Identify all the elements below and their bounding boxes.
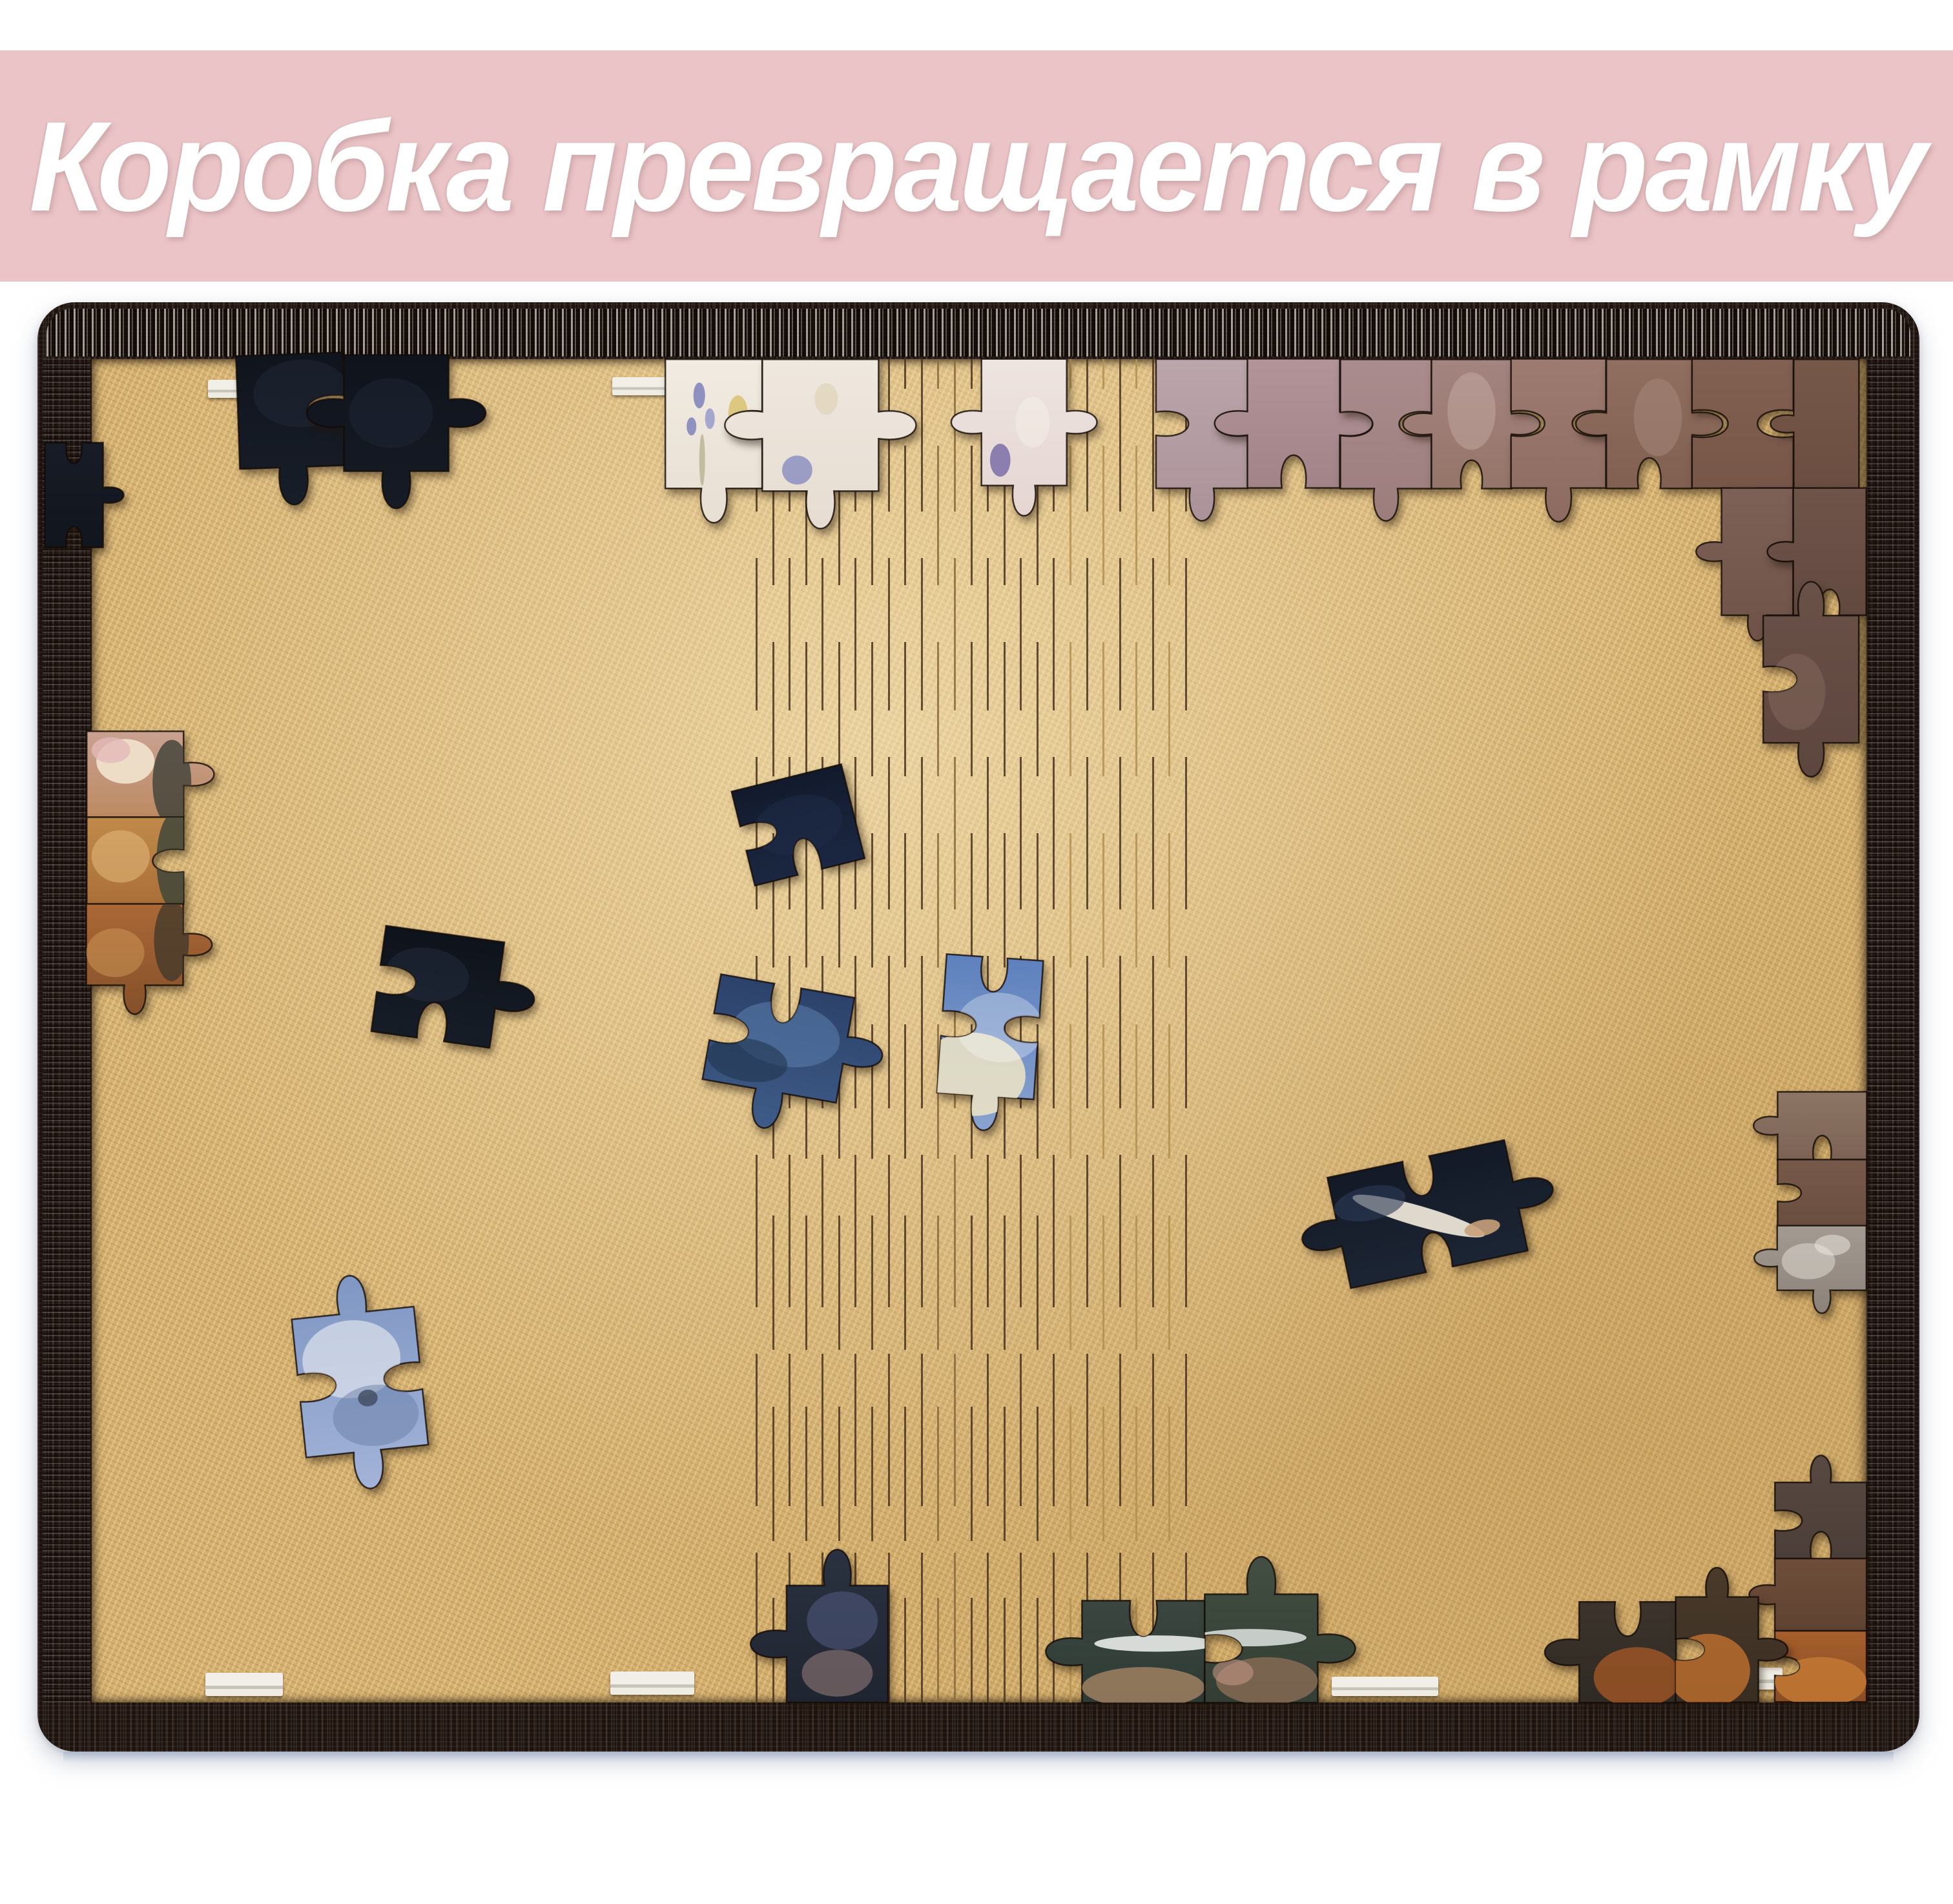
puzzle-piece-edge-right-r3 [1713, 565, 1909, 793]
puzzle-piece-edge-right-mc [1743, 1192, 1901, 1325]
product-photo [37, 302, 1919, 1752]
lid-slot [205, 1673, 283, 1696]
hinge-cut-line [1135, 359, 1137, 1702]
puzzle-piece-loose-navy-left [14, 412, 134, 578]
hinge-cut-line [1168, 359, 1170, 1702]
puzzle-piece-edge-sunset-c [43, 861, 226, 1028]
puzzle-piece-bottom-piece-2b [1149, 1538, 1374, 1759]
puzzle-piece-loose-sky-bottomleft [230, 1245, 489, 1519]
puzzle-piece-bottom-piece-1 [733, 1532, 942, 1756]
lid-slot [610, 1671, 694, 1695]
puzzle-piece-bottom-piece-3b [1632, 1553, 1802, 1746]
puzzle-piece-loose-navy-mid [308, 862, 567, 1110]
hinge-cut-line [1119, 359, 1121, 1702]
hinge-cut-line [1152, 359, 1154, 1702]
puzzle-piece-loose-blue-steel [637, 909, 919, 1167]
frame-reflection [63, 1752, 1894, 1763]
puzzle-piece-loose-sky-center [882, 899, 1098, 1154]
banner: Коробка превращается в рамку [0, 50, 1953, 282]
product-image: { "banner": { "text": "Коробка превращае… [0, 0, 1953, 1904]
puzzle-piece-loose-navy-pair-b [289, 300, 504, 526]
hinge-cut-line [1102, 359, 1104, 1702]
hinge-cut-line [1185, 359, 1187, 1702]
banner-title: Коробка превращается в рамку [29, 93, 1924, 240]
puzzle-piece-edge-flower-2 [707, 304, 935, 547]
puzzle-piece-edge-flower-3 [936, 314, 1111, 530]
